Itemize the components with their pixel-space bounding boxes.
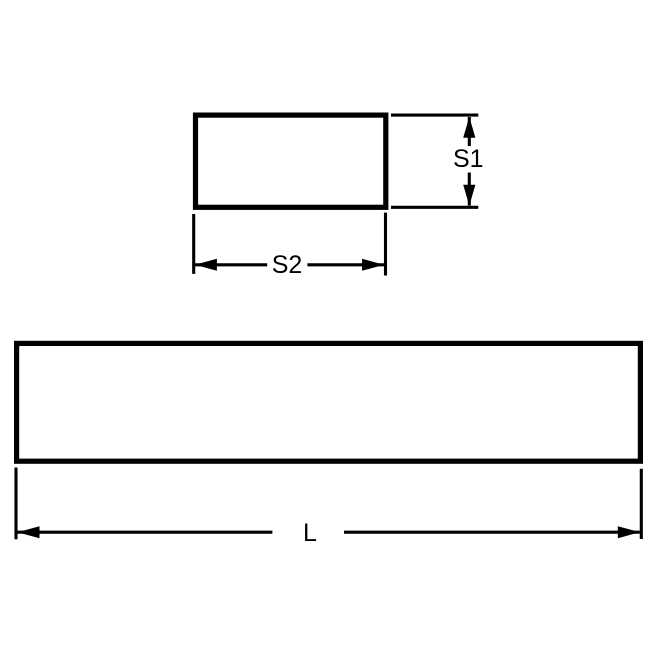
svg-text:S1: S1: [453, 145, 484, 173]
svg-text:L: L: [303, 519, 317, 547]
svg-text:S2: S2: [272, 251, 303, 279]
